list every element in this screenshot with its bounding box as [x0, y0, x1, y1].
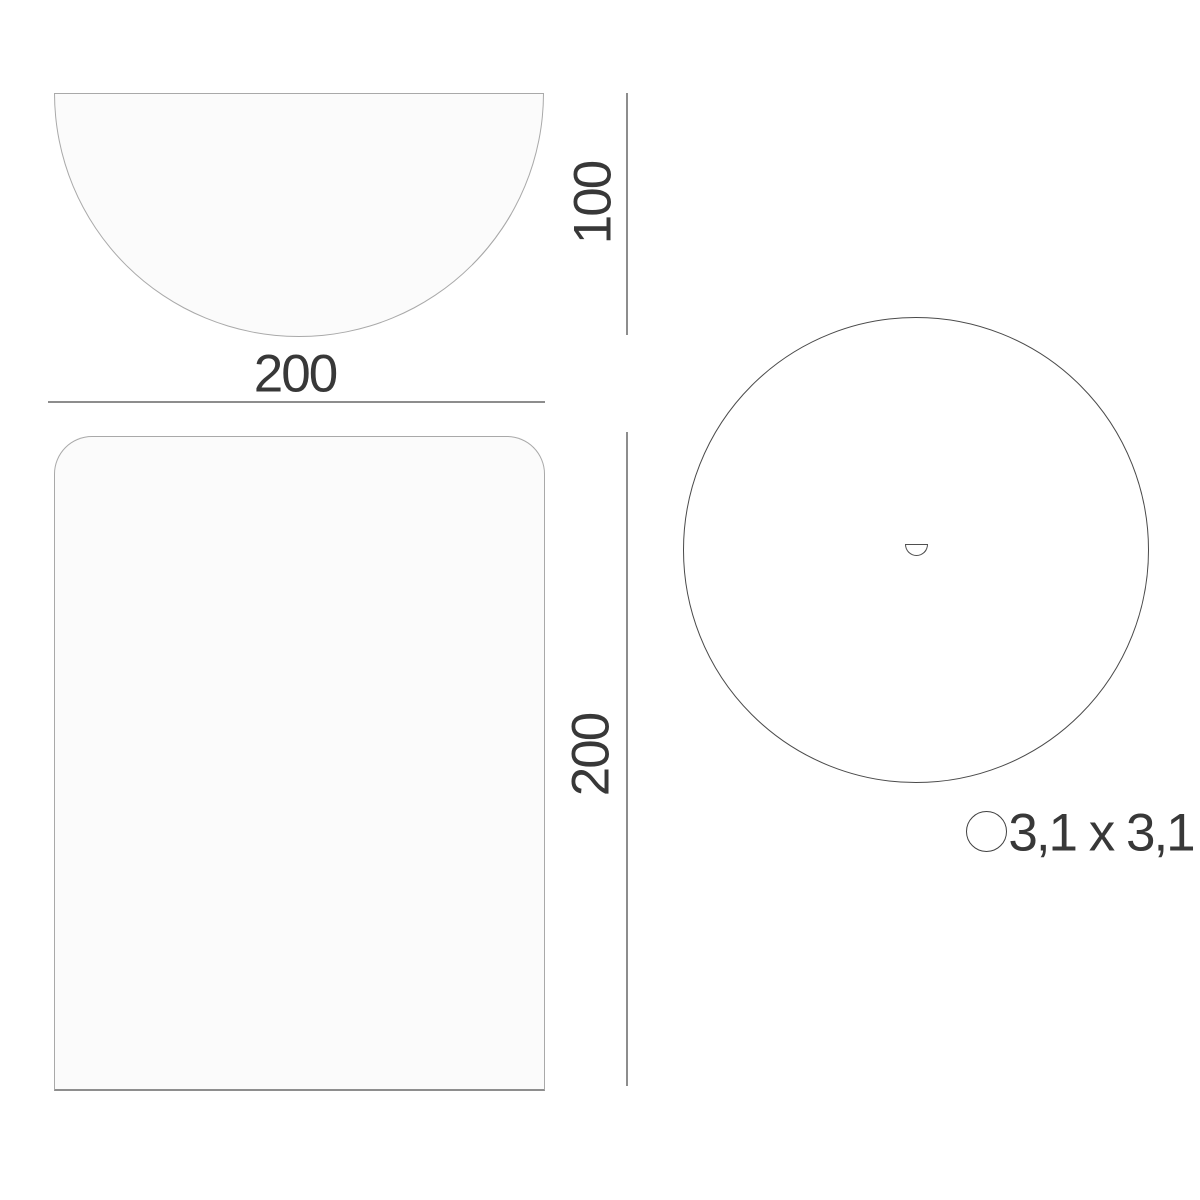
semicircle-height-dimension-line: [626, 93, 628, 335]
width-dimension-line: [48, 401, 545, 403]
hole-size-label: 3,1 x 3,1: [1008, 807, 1193, 860]
hole-symbol-circle: [966, 811, 1007, 852]
dimension-diagram: 200 100 200 3,1 x 3,1: [0, 0, 1200, 1200]
semicircle-shape: [54, 93, 544, 337]
rectangle-height-dimension-line: [626, 432, 628, 1086]
rectangle-height-label: 200: [565, 714, 618, 796]
rounded-rectangle-shape: [54, 436, 545, 1091]
semicircle-height-label: 100: [567, 162, 620, 244]
semicircle-width-label: 200: [254, 348, 336, 401]
